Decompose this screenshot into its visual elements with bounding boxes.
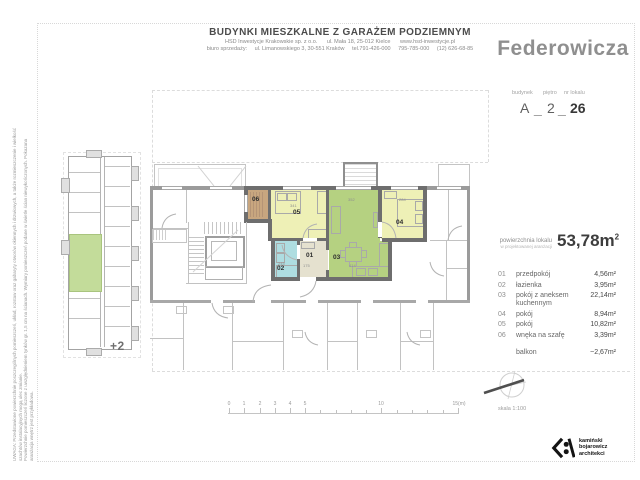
terrace-inner-rail <box>158 168 242 188</box>
room-name: pokój z aneksem kuchennym <box>516 292 578 308</box>
balcony-outline-right <box>438 164 470 188</box>
room-row: 01 przedpokój 4,56m² <box>498 271 616 279</box>
plan-label-01: 01 <box>306 252 313 259</box>
pillow <box>287 193 297 201</box>
page-title: BUDYNKI MIESZKALNE Z GARAŻEM PODZIEMNYM <box>180 27 500 38</box>
scalebar-tick <box>458 408 459 413</box>
dim-room03-top: 352 <box>348 197 355 202</box>
room-area: 22,14m² <box>578 292 616 308</box>
room-name: łazienka <box>516 282 578 290</box>
scalebar-tick <box>427 410 428 413</box>
room-schedule: 01 przedpokój 4,56m² 02 łazienka 3,95m² … <box>498 271 616 359</box>
room-row: 03 pokój z aneksem kuchennym 22,14m² <box>498 292 616 308</box>
room-no: 05 <box>498 321 516 329</box>
window-balcony-door <box>336 186 371 190</box>
scalebar-tick <box>397 410 398 413</box>
wall-06-05 <box>268 186 271 223</box>
closet-room04 <box>384 191 397 199</box>
wall-05-03 <box>326 186 329 241</box>
scalebar-tick <box>244 408 245 413</box>
scalebar-label: 3 <box>270 401 280 407</box>
lower-unit-wall <box>327 341 357 342</box>
neighbour-wall <box>448 190 449 240</box>
plan-label-04: 04 <box>396 219 403 226</box>
wall-bottom <box>271 277 392 281</box>
room-no: 06 <box>498 332 516 340</box>
stair-wall <box>186 283 247 284</box>
scalebar-label: 4 <box>285 401 295 407</box>
window-room05 <box>283 186 311 190</box>
neighbour-wall <box>446 240 447 300</box>
dim-room03-bottom: 414 <box>349 263 356 268</box>
lower-unit-wall <box>232 341 283 342</box>
wall-stub-01-03 <box>326 270 329 281</box>
unit-building: A <box>520 100 529 116</box>
plan-label-06: 06 <box>252 196 259 203</box>
corridor-door-gap <box>211 300 223 303</box>
apartment-balcony <box>343 162 378 189</box>
architect-logo-text: kamiński bojarowicz architekci <box>579 438 607 457</box>
room-area: 8,94m² <box>578 311 616 319</box>
siteplan-partition <box>69 172 100 173</box>
pillow <box>415 214 423 224</box>
lower-unit-fixture <box>366 330 377 338</box>
wall-right-04 <box>423 186 427 242</box>
plan-boundary-dash <box>152 162 488 163</box>
scale-label: skala 1:100 <box>498 406 526 412</box>
siteplan-unit-highlight <box>69 234 102 292</box>
unit-separator: _ <box>558 100 566 116</box>
pillow <box>415 201 423 211</box>
balcony-row: balkon ~2,67m² <box>498 349 616 357</box>
room-no: 02 <box>498 282 516 290</box>
room-no: 04 <box>498 311 516 319</box>
scalebar-tick <box>412 410 413 413</box>
door-gap-05 <box>303 238 317 241</box>
scalebar-tick <box>443 410 444 413</box>
area-sublabel: w projektowanej aranżacji <box>492 244 552 249</box>
scalebar-tick <box>381 408 382 413</box>
railing-comb <box>153 230 167 240</box>
plan-boundary-dash <box>152 371 630 372</box>
unit-label-floor: piętro <box>543 90 557 96</box>
siteplan-balcony <box>131 286 139 301</box>
siteplan-partition <box>105 226 130 227</box>
stair-wall <box>188 222 189 284</box>
siteplan-partition <box>105 306 130 307</box>
disclaimer-line1: UWAGA: Przedstawione powierzchnie poszcz… <box>12 126 23 461</box>
siteplan-balcony <box>61 178 70 193</box>
lower-unit-wall <box>400 303 401 370</box>
window-room04 <box>391 186 418 190</box>
kitchen-sink <box>356 268 366 276</box>
siteplan-partition <box>105 326 130 327</box>
area-label-block: powierzchnia lokalu w projektowanej aran… <box>492 238 552 249</box>
lower-unit-wall <box>283 303 284 370</box>
architect-logo-icon <box>551 436 575 460</box>
lower-unit-wall <box>433 303 434 370</box>
scalebar-line <box>228 413 459 414</box>
scalebar-tick <box>275 408 276 413</box>
unit-label-number: nr lokalu <box>564 90 585 96</box>
corridor-door-gap <box>416 300 428 303</box>
window-neighbour <box>437 186 461 190</box>
dim-room05: 341 <box>290 203 297 208</box>
window-neighbour <box>162 186 182 190</box>
room-row: 05 pokój 10,82m² <box>498 321 616 329</box>
lower-unit-fixture <box>292 330 303 338</box>
ext-wall <box>467 189 470 303</box>
siteplan-balcony <box>131 206 139 221</box>
siteplan-balcony <box>86 348 102 356</box>
balcony-no-spacer <box>498 349 516 357</box>
siteplan-balcony <box>131 246 139 261</box>
room-area: 4,56m² <box>578 271 616 279</box>
siteplan-floor-label: +2 <box>110 339 125 353</box>
plan-label-05: 05 <box>293 209 300 216</box>
sales-office-label: biuro sprzedaży: <box>207 46 247 52</box>
company-address: ul. Mała 18, 25-012 Kielce <box>327 39 391 45</box>
door-gap-02 <box>297 245 300 259</box>
door-gap-04 <box>378 222 382 237</box>
room-name: pokój <box>516 311 578 319</box>
wall-05-01 <box>271 238 329 241</box>
corridor-door-gap <box>255 300 271 303</box>
window-room06 <box>244 195 248 212</box>
unit-label-building: budynek <box>512 90 533 96</box>
company-website: www.hsd-inwestycje.pl <box>400 39 455 45</box>
siteplan-balcony <box>131 326 139 341</box>
plan-label-02: 02 <box>277 265 284 272</box>
plan-sheet: { "header": { "title": "BUDYNKI MIESZKAL… <box>0 0 640 480</box>
corridor-door-gap <box>306 300 318 303</box>
lower-unit-wall <box>357 303 358 370</box>
siteplan-partition <box>69 318 100 319</box>
lower-unit-fixture <box>420 330 431 338</box>
scalebar-tick <box>366 410 367 413</box>
unit-separator: _ <box>534 100 542 116</box>
lower-unit-wall <box>400 341 433 342</box>
scalebar-label: 15(m) <box>448 401 470 407</box>
dining-table <box>345 247 362 262</box>
scalebar-tick <box>351 410 352 413</box>
entrance-door-gap <box>300 277 316 281</box>
siteplan-balcony <box>61 240 70 255</box>
room-no: 01 <box>498 271 516 279</box>
plan-boundary-dash <box>152 90 488 91</box>
phone-2: 795-785-000 <box>398 46 429 52</box>
disclaimer-line2: Powierzchnie pomieszczeń liczone z uwzgl… <box>23 126 34 461</box>
elevator-car <box>211 241 237 261</box>
scalebar-label: 5 <box>300 401 310 407</box>
siteplan-partition <box>105 246 130 247</box>
lower-unit-fixture <box>223 306 234 314</box>
company-name: HSD Inwestycje Krakowskie sp. z o.o. <box>225 39 317 45</box>
room-area: 10,82m² <box>578 321 616 329</box>
phone-1: tel.791-426-000 <box>352 46 391 52</box>
lower-unit-wall <box>150 338 183 339</box>
plan-boundary-dash <box>488 90 489 162</box>
wall-bottom-06 <box>244 219 271 223</box>
lower-unit-fixture <box>176 306 187 314</box>
kitchen-stove <box>368 268 378 276</box>
scalebar-label: 1 <box>239 401 249 407</box>
window-neighbour <box>210 186 232 190</box>
room-row: 04 pokój 8,94m² <box>498 311 616 319</box>
room-name: przedpokój <box>516 271 578 279</box>
room-area: 3,39m² <box>578 332 616 340</box>
brand-name: Federowicza <box>492 37 634 61</box>
balcony-area: ~2,67m² <box>578 349 616 357</box>
siteplan-partition <box>105 206 130 207</box>
disclaimer-text: UWAGA: Przedstawione powierzchnie poszcz… <box>12 126 34 461</box>
logo-line2: bojarowicz <box>579 444 607 450</box>
header: BUDYNKI MIESZKALNE Z GARAŻEM PODZIEMNYM … <box>180 27 500 52</box>
scalebar-tick <box>260 408 261 413</box>
scalebar-label: 2 <box>255 401 265 407</box>
siteplan-partition <box>105 286 130 287</box>
room-name: wnęka na szafę <box>516 332 578 340</box>
sofa <box>331 206 341 234</box>
scalebar-label: 10 <box>376 401 386 407</box>
neighbour-wall <box>430 240 467 241</box>
dim-room04: 284 <box>399 197 406 202</box>
room-row: 06 wnęka na szafę 3,39m² <box>498 332 616 340</box>
pillow <box>277 193 287 201</box>
header-line2: HSD Inwestycje Krakowskie sp. z o.o. ul.… <box>180 39 500 45</box>
stairs-steps <box>189 234 204 274</box>
siteplan-partition <box>69 192 100 193</box>
stairs-hatch <box>204 222 244 234</box>
scalebar-tick <box>290 408 291 413</box>
area-value: 53,78m2 <box>557 231 619 251</box>
chair <box>361 250 367 258</box>
lower-unit-wall <box>327 303 328 370</box>
scalebar-tick <box>320 410 321 413</box>
wall-bottom-04 <box>382 238 427 242</box>
room-area: 3,95m² <box>578 282 616 290</box>
scalebar-tick <box>305 408 306 413</box>
scalebar-label: 0 <box>224 401 234 407</box>
siteplan-balcony <box>131 166 139 181</box>
neighbour-wall <box>186 190 187 223</box>
plan-label-03: 03 <box>333 254 340 261</box>
wall-right-kitchen <box>388 238 392 281</box>
sales-office-address: ul. Limanowskiego 3, 30-551 Kraków <box>255 46 345 52</box>
header-line3: biuro sprzedaży: ul. Limanowskiego 3, 30… <box>180 46 500 52</box>
siteplan-partition <box>69 298 100 299</box>
phone-3: (12) 626-68-85 <box>437 46 473 52</box>
scalebar-tick <box>229 408 230 413</box>
washbasin <box>276 243 285 253</box>
room-no: 03 <box>498 292 516 308</box>
room-row: 02 łazienka 3,95m² <box>498 282 616 290</box>
area-number: 53,78m <box>557 231 615 250</box>
hall-closet <box>301 242 315 249</box>
unit-number: 26 <box>570 100 586 116</box>
dim-room02: 245 <box>278 261 285 266</box>
corridor-door-gap <box>361 300 373 303</box>
wall-left-02 <box>271 238 275 281</box>
wall-stub-01-03 <box>326 241 329 250</box>
room-name: pokój <box>516 321 578 329</box>
area-sup: 2 <box>615 232 619 241</box>
neighbour-wall <box>446 268 467 269</box>
dim-room01: 175 <box>303 263 310 268</box>
siteplan-partition <box>105 186 130 187</box>
scalebar-tick <box>336 410 337 413</box>
logo-line3: architekci <box>579 451 607 457</box>
shaft-lower <box>205 266 243 280</box>
siteplan-partition <box>69 212 100 213</box>
chair <box>349 242 357 248</box>
chair <box>340 250 346 258</box>
ext-wall <box>150 189 153 303</box>
siteplan-partition <box>105 266 130 267</box>
siteplan-balcony <box>86 150 102 158</box>
siteplan-partition <box>105 166 130 167</box>
balcony-name: balkon <box>516 349 578 357</box>
unit-floor: 2 <box>547 100 555 116</box>
stair-wall <box>246 222 247 284</box>
